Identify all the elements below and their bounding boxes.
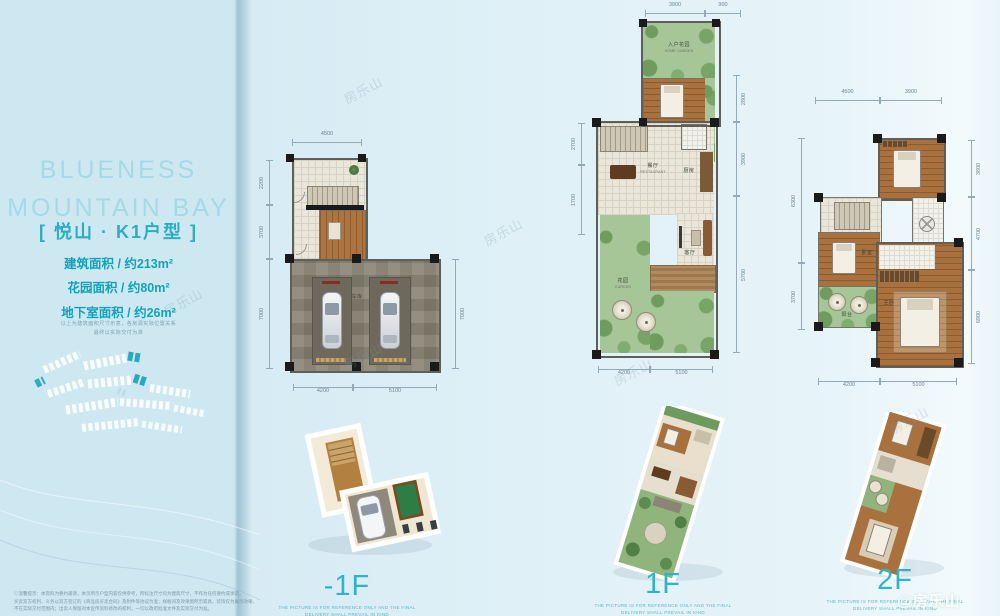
b1-car-2 <box>380 292 400 349</box>
dim-f2-bottom-5100: 5100 <box>880 378 957 385</box>
wall-column <box>592 350 601 359</box>
wall-column <box>286 154 294 162</box>
f1-outline-wing <box>641 21 721 127</box>
f2-staircase <box>834 202 870 230</box>
dim-f1-right-5700: 5700 <box>733 196 740 353</box>
site-plan-miniature <box>22 336 218 444</box>
f2-bed-top <box>893 150 921 188</box>
b1-garage-label: 车库 <box>348 294 366 301</box>
render-basement-3d <box>285 420 445 570</box>
legal-disclaimer: ◎温馨提示：本资料为要约邀请，本页所示户型内容仅供参考，所标注尺寸均为建筑尺寸，… <box>14 590 314 613</box>
floor-caption-f1: THE PICTURE IS FOR REFERENCE ONLY AND TH… <box>588 602 738 616</box>
wall-column <box>937 134 946 143</box>
dim-f2-right-4700: 4700 <box>968 197 975 270</box>
b1-drain-grate-2 <box>374 358 406 362</box>
wall-column <box>285 254 294 263</box>
dim-b1-left-7000: 7000 <box>266 259 273 369</box>
b1-stop-strip-1 <box>322 281 340 284</box>
dim-b1-bottom-4200: 4200 <box>293 384 353 391</box>
dim-f1-right-2800: 2800 <box>733 75 740 122</box>
f2-gazebo-1 <box>828 293 846 311</box>
wall-column <box>352 254 361 263</box>
caption-line2: DELIVERY SHALL PREVAIL IN KIND <box>272 611 422 616</box>
dim-b1-right-7000: 7000 <box>452 259 459 369</box>
watermark: 房乐山 <box>610 353 656 390</box>
b1-storage-cabinet <box>328 222 341 240</box>
f2-balcony-label: 阳台 <box>838 312 856 319</box>
b1-car-1 <box>322 292 342 349</box>
dim-f2-top-3900: 3900 <box>880 97 942 104</box>
area-note-line1: 以上为建筑面积尺寸示意，各房源实际位置关系 <box>0 320 237 329</box>
dim-f2-left-3700: 3700 <box>798 263 805 330</box>
f2-bedroom2-label: 卧室 <box>858 250 876 257</box>
dim-b1-left-2200: 2200 <box>266 160 273 205</box>
watermark: 房乐山 <box>340 71 386 108</box>
caption-line2: DELIVERY SHALL PREVAIL IN KIND <box>588 609 738 616</box>
watermark-badge: @房乐山 <box>897 590 961 611</box>
f2-wardrobe-top <box>882 141 908 147</box>
wall-column <box>871 358 880 367</box>
area-specs: 建筑面积 / 约213m² 花园面积 / 约80m² 地下室面积 / 约26m² <box>0 252 237 325</box>
dim-f1-right-3900: 3900 <box>733 122 740 196</box>
wall-column <box>710 350 719 359</box>
wall-column <box>712 19 720 27</box>
b1-stop-strip-2 <box>380 281 398 284</box>
wall-column <box>871 322 880 331</box>
floor-label-b1: -1F <box>302 570 392 603</box>
caption-line1: THE PICTURE IS FOR REFERENCE ONLY AND TH… <box>272 604 422 611</box>
project-title-line1: BLUENESS <box>0 152 237 190</box>
wall-column <box>430 254 439 263</box>
wall-column <box>954 238 963 247</box>
watermark: 房乐山 <box>480 213 526 250</box>
dim-f2-right-3800: 3800 <box>968 140 975 197</box>
dim-f2-top-4500: 4500 <box>815 97 880 104</box>
dim-f2-left-6300: 6300 <box>798 138 805 263</box>
wall-column <box>954 358 963 367</box>
spec-building-area: 建筑面积 / 约213m² <box>0 252 237 276</box>
wall-column <box>814 322 823 331</box>
wall-column <box>814 193 823 202</box>
floor-caption-b1: THE PICTURE IS FOR REFERENCE ONLY AND TH… <box>272 604 422 616</box>
unit-type-name: [ 悦山 · K1户型 ] <box>0 218 237 244</box>
dim-f1-top-3900: 3900 <box>645 10 705 17</box>
brochure-page: BLUENESS MOUNTAIN BAY [ 悦山 · K1户型 ] 建筑面积… <box>0 0 1000 616</box>
f2-shower <box>919 216 935 232</box>
f2-suite-bed <box>900 297 940 347</box>
dim-b1-left-3700: 3700 <box>266 205 273 259</box>
dim-b1-bottom-5100: 5100 <box>353 384 437 391</box>
wall-column <box>592 118 601 127</box>
dim-f2-bottom-4200: 4200 <box>818 378 880 385</box>
wall-column <box>873 134 882 143</box>
dim-f1-bottom-5100: 5100 <box>650 366 713 373</box>
f2-bed2 <box>832 242 856 274</box>
caption-line1: THE PICTURE IS FOR REFERENCE ONLY AND TH… <box>588 602 738 609</box>
dim-b1-top-4500: 4500 <box>292 139 362 146</box>
f2-suite-closet <box>879 271 919 282</box>
legal-disclaimer-line2: 买卖双方权利、义务以双方签订的《商品房买卖合同》及附件等协议为准；样板间及效果图… <box>14 598 314 606</box>
f2-master-label: 主卧 <box>880 300 898 307</box>
render-floor1-3d <box>590 406 750 588</box>
dim-f1-left-2700: 2700 <box>578 123 585 165</box>
b1-plant <box>349 165 359 175</box>
project-title: BLUENESS MOUNTAIN BAY <box>0 152 237 227</box>
dim-f1-left-1700: 1700 <box>578 165 585 235</box>
wall-column <box>710 118 719 127</box>
render-floor2-3d <box>822 412 972 584</box>
wall-column <box>639 19 647 27</box>
legal-disclaimer-line3: 不在实际交付范围内；出卖人保留对本宣传资料修改的权利，一切以政府批准文件及实际交… <box>14 605 314 613</box>
dim-f2-right-6900: 6900 <box>968 270 975 364</box>
floor-label-f1: 1F <box>618 568 708 601</box>
f2-suite-bath <box>879 245 935 269</box>
legal-disclaimer-line1: ◎温馨提示：本资料为要约邀请，本页所示户型内容仅供参考，所标注尺寸均为建筑尺寸，… <box>14 590 314 598</box>
wall-column <box>285 362 294 371</box>
wall-column <box>639 118 647 126</box>
dim-f1-top-900: 900 <box>705 10 741 17</box>
wall-column <box>358 154 366 162</box>
wall-column <box>937 193 946 202</box>
wall-column <box>430 362 439 371</box>
f1-outline-main <box>596 121 718 358</box>
